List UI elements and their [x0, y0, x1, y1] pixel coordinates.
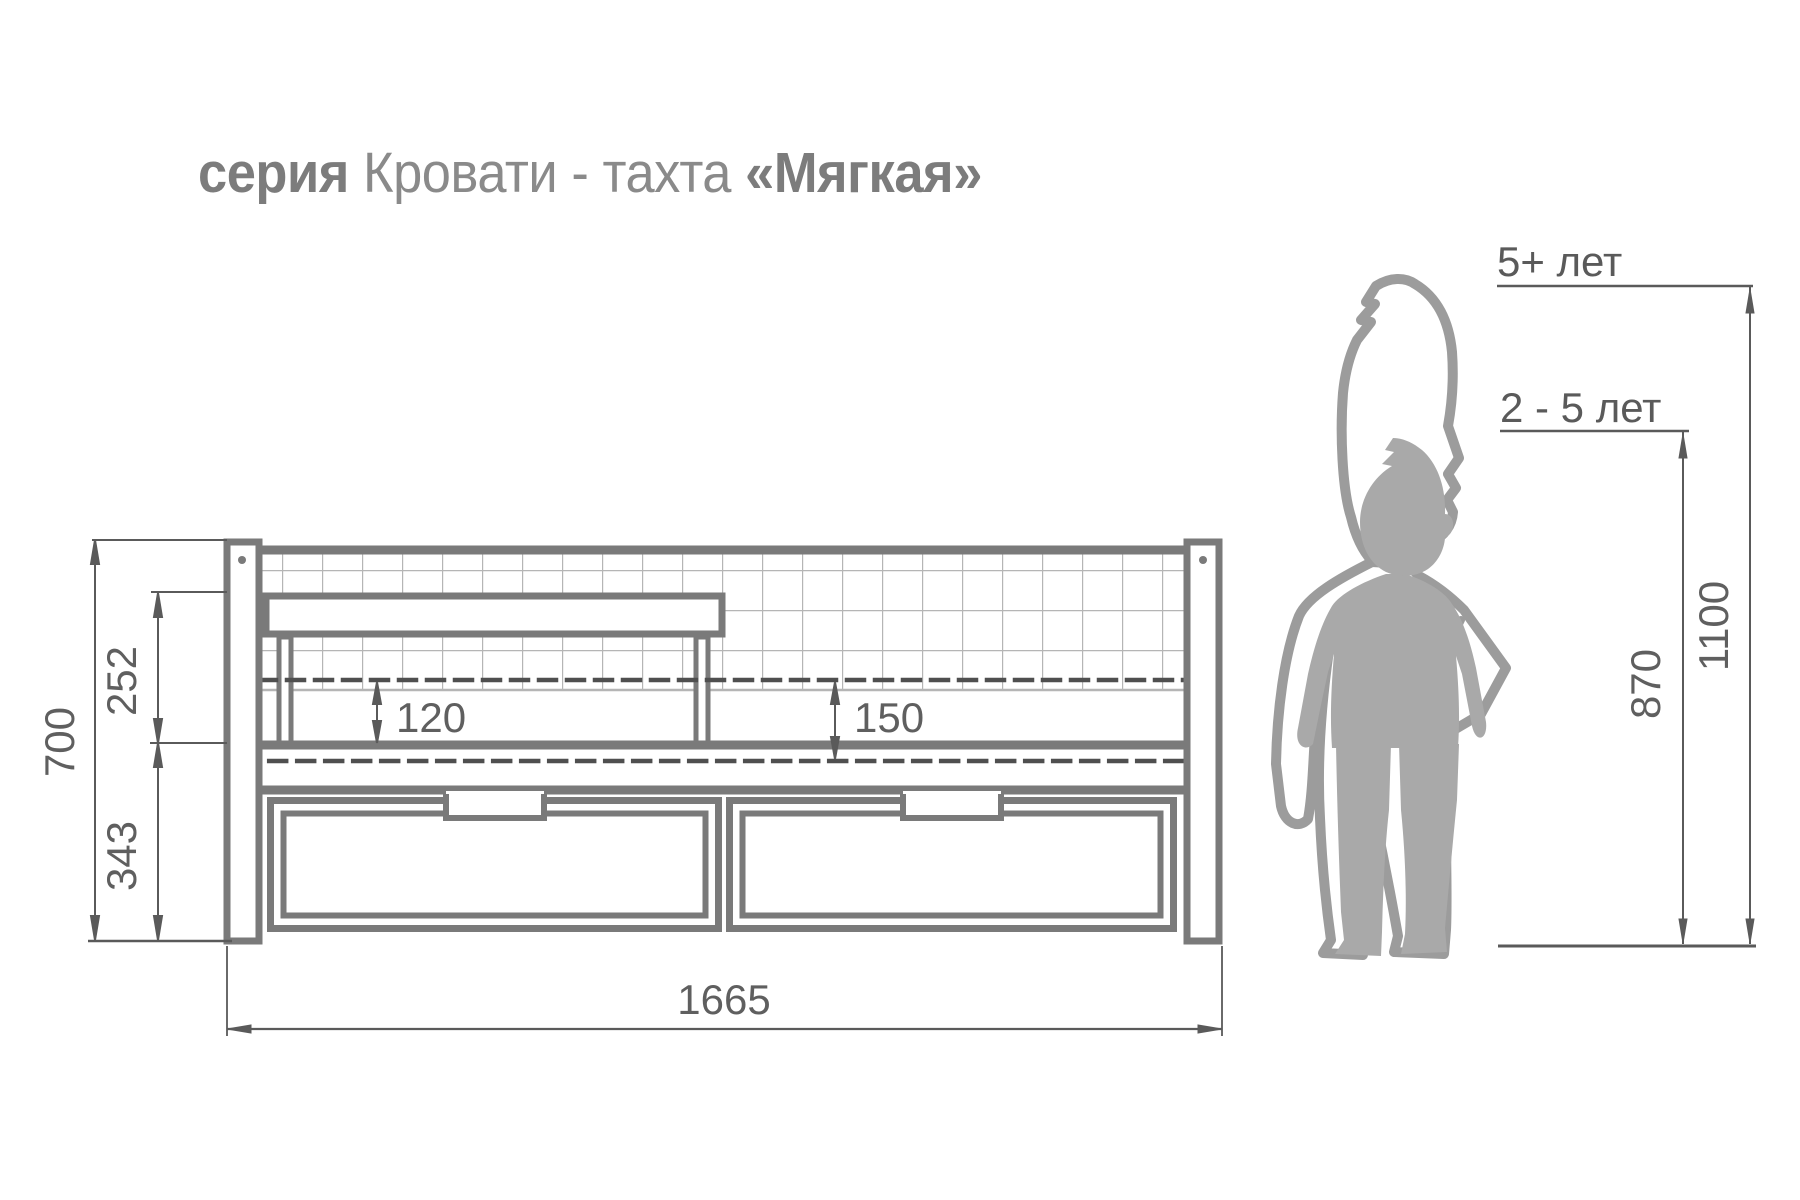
- shelf-leg-right: [696, 637, 708, 743]
- label-mattress-left: 120: [396, 694, 466, 741]
- drawer-left-handle-notch: [446, 797, 544, 818]
- bed-post-left: [227, 542, 259, 941]
- bed-technical-diagram: 700 252 343 120 150 1665: [0, 0, 1800, 1200]
- child-silhouettes: [1276, 279, 1506, 956]
- label-backrest-height: 252: [98, 646, 145, 716]
- bed-post-right: [1187, 542, 1219, 941]
- page: серия Кровати - тахта «Мягкая»: [0, 0, 1800, 1200]
- label-height-870: 870: [1622, 649, 1669, 719]
- label-total-length: 1665: [677, 976, 770, 1023]
- dimension-252: [154, 593, 162, 743]
- label-age-younger: 2 - 5 лет: [1500, 384, 1661, 431]
- drawer-right: [730, 791, 1174, 929]
- label-total-height: 700: [36, 707, 83, 777]
- dimension-343: [154, 743, 162, 940]
- dimension-150: [831, 682, 839, 759]
- post-bolt-right: [1199, 556, 1207, 564]
- post-bolt-left: [238, 556, 246, 564]
- drawer-left: [271, 791, 719, 929]
- shelf-leg-left: [279, 637, 291, 743]
- shelf-board: [266, 596, 722, 634]
- drawer-right-handle-notch: [903, 797, 1001, 818]
- label-height-1100: 1100: [1690, 581, 1737, 671]
- label-age-older: 5+ лет: [1497, 238, 1622, 285]
- label-base-height: 343: [98, 821, 145, 891]
- younger-child-leg-left: [1335, 744, 1391, 956]
- label-mattress-right: 150: [854, 694, 924, 741]
